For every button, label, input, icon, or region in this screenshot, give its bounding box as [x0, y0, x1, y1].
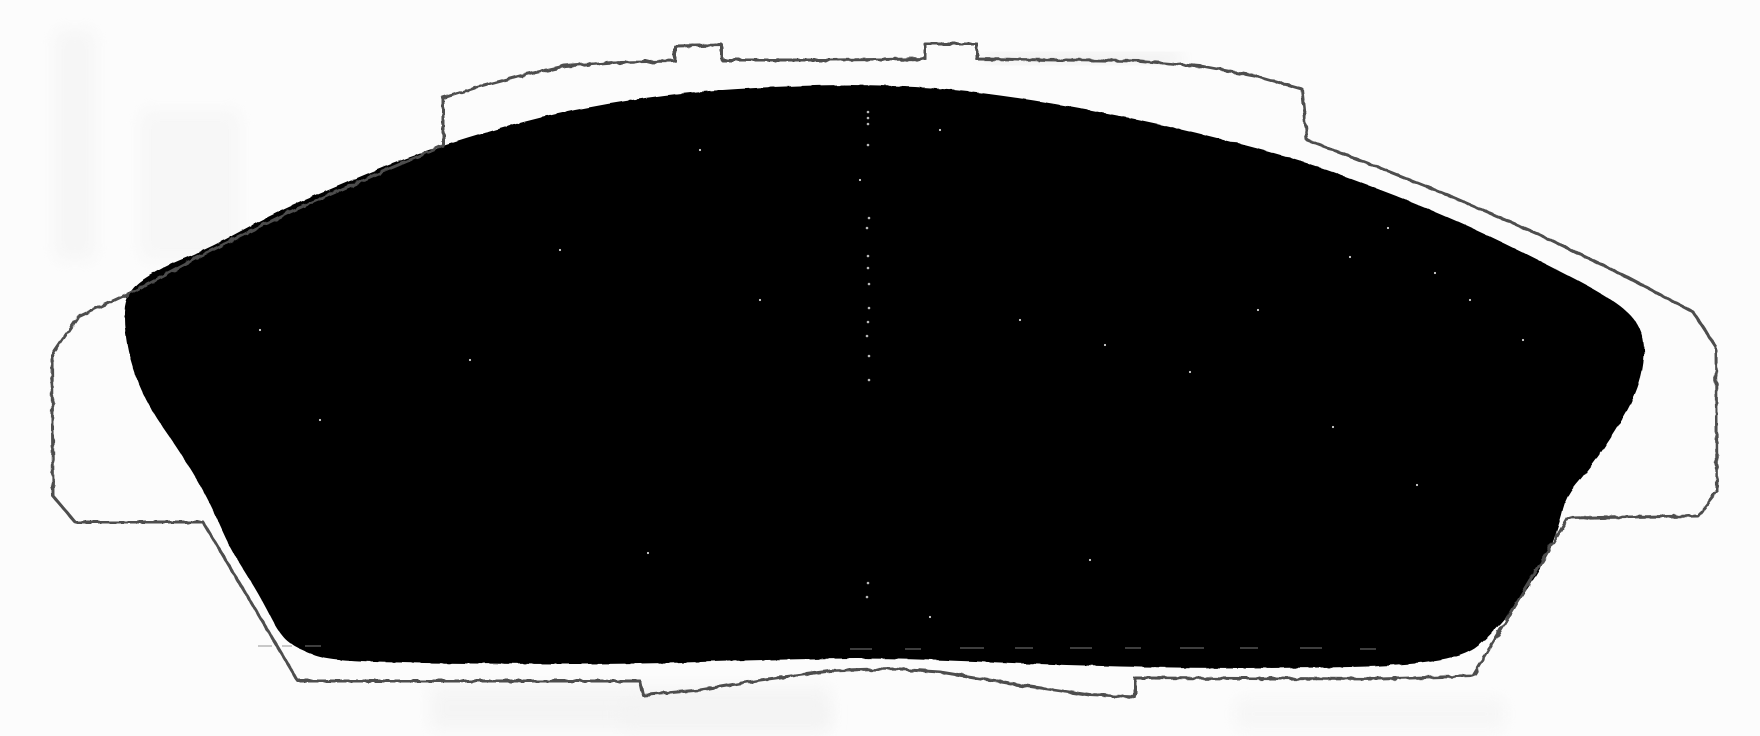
- speckle-dot: [939, 129, 941, 131]
- shade-patch: [140, 110, 240, 260]
- seam-dot: [867, 144, 870, 147]
- scuff-dash: [1360, 648, 1376, 650]
- scuff-dash: [258, 645, 272, 647]
- speckle-dot: [319, 419, 321, 421]
- seam-dot: [867, 111, 870, 114]
- seam-dot: [867, 582, 870, 585]
- seam-dot: [867, 321, 870, 324]
- seam-dot: [866, 596, 869, 599]
- friction-material: [124, 85, 1644, 668]
- scuff-dash: [1070, 647, 1092, 649]
- scuff-dash: [282, 645, 292, 647]
- scuff-dash: [1180, 647, 1204, 649]
- speckle-dot: [1387, 227, 1389, 229]
- brake-pad-scan: [0, 0, 1760, 736]
- speckle-dot: [1019, 319, 1021, 321]
- speckle-dot: [1189, 371, 1191, 373]
- speckle-dot: [1349, 256, 1351, 258]
- speckle-dot: [699, 149, 701, 151]
- seam-dot: [868, 307, 871, 310]
- speckle-dot: [1434, 272, 1436, 274]
- speckle-dot: [1257, 309, 1259, 311]
- speckle-dot: [1416, 484, 1418, 486]
- seam-dot: [867, 255, 870, 258]
- seam-dot: [867, 123, 870, 126]
- speckle-dot: [759, 299, 761, 301]
- scuff-dash: [905, 648, 921, 650]
- seam-dot: [867, 117, 870, 120]
- scuff-dash: [305, 645, 321, 647]
- shade-patch: [620, 700, 830, 730]
- speckle-dot: [1522, 339, 1524, 341]
- scuff-dash: [1015, 647, 1033, 649]
- speckle-dot: [469, 359, 471, 361]
- seam-dot: [866, 335, 869, 338]
- scuff-dash: [1300, 647, 1322, 649]
- scuff-dash: [1125, 647, 1141, 649]
- speckle-dot: [929, 616, 931, 618]
- speckle-dot: [1332, 426, 1334, 428]
- seam-dot: [867, 267, 870, 270]
- speckle-dot: [647, 552, 649, 554]
- speckle-dot: [259, 329, 261, 331]
- speckle-dot: [1469, 299, 1471, 301]
- seam-dot: [868, 355, 871, 358]
- shade-patch: [1235, 698, 1505, 730]
- scuff-dash: [1240, 647, 1258, 649]
- shade-patch: [55, 30, 95, 260]
- seam-dot: [866, 227, 869, 230]
- seam-dot: [868, 217, 871, 220]
- seam-dot: [868, 379, 871, 382]
- speckle-dot: [1104, 344, 1106, 346]
- speckle-dot: [859, 179, 861, 181]
- scuff-dash: [850, 648, 872, 650]
- scuff-dash: [960, 647, 984, 649]
- speckle-dot: [559, 249, 561, 251]
- brake-pad-diagram: [0, 0, 1760, 736]
- speckle-dot: [1089, 559, 1091, 561]
- seam-dot: [868, 283, 871, 286]
